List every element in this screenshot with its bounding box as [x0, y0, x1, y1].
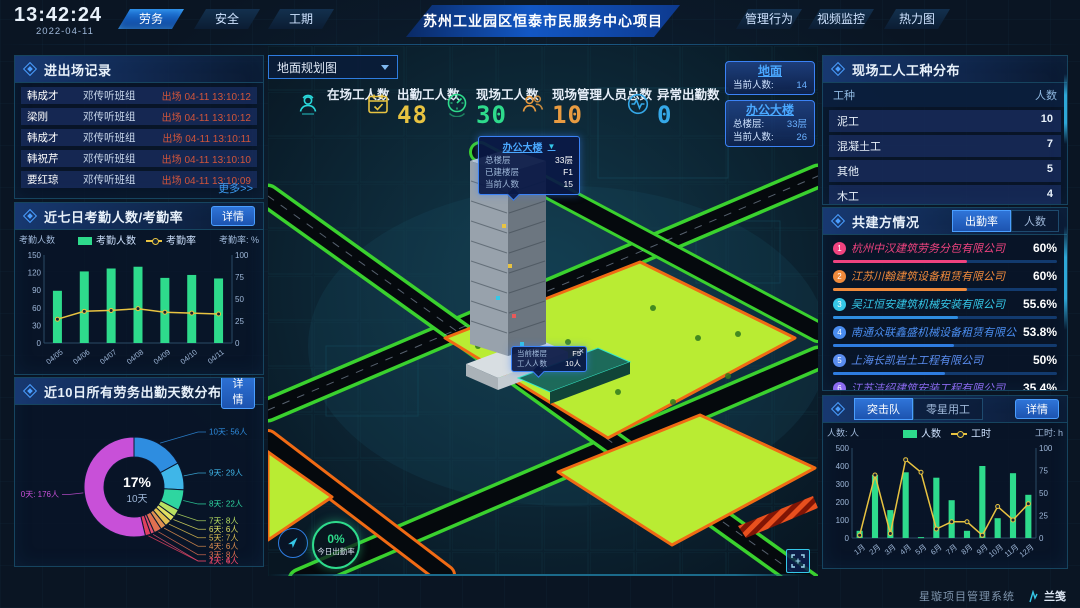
top-tab[interactable]: 管理行为	[736, 9, 802, 29]
svg-text:75: 75	[1039, 467, 1048, 476]
worker-type: 其他	[837, 163, 1013, 179]
svg-text:50: 50	[1039, 489, 1048, 498]
partner-row: 3 吴江恒安建筑机械安装有限公司 55.6%	[833, 296, 1057, 319]
svg-text:150: 150	[28, 251, 42, 260]
svg-text:5月: 5月	[913, 542, 928, 556]
svg-text:10月: 10月	[987, 542, 1005, 559]
svg-text:9月: 9月	[975, 542, 990, 556]
building-name[interactable]: 地面	[733, 64, 807, 79]
partners-tab-group: 出勤率 人数	[952, 210, 1059, 232]
panel-title: 共建方情况	[852, 212, 920, 231]
bar-swatch	[78, 237, 92, 245]
partner-row: 5 上海长凯岩土工程有限公司 50%	[833, 352, 1057, 375]
attendance-pct: 0%	[327, 533, 344, 546]
attendance-rate: 55.6%	[1023, 297, 1057, 311]
attendance-label: 今日出勤率	[317, 546, 355, 557]
building-card-office[interactable]: 办公大楼 总楼层:33层 当前人数:26	[725, 100, 815, 147]
rank-badge: 5	[833, 354, 846, 367]
clock-date: 2022-04-11	[36, 26, 94, 37]
svg-text:200: 200	[836, 498, 850, 507]
building-tooltip: 办公大楼 ▼ 总楼层33层 已建楼层F1 当前人数15	[478, 136, 580, 195]
company-name: 江苏洁绍建筑安装工程有限公司	[851, 380, 1017, 391]
right-axis-title: 工时: h	[1035, 426, 1063, 439]
svg-text:1天: 6人: 1天: 6人	[209, 557, 238, 566]
detail-button[interactable]: 详情	[211, 206, 255, 226]
svg-text:6月: 6月	[929, 542, 944, 556]
svg-text:100: 100	[1039, 444, 1053, 453]
work-group: 邓传听班组	[83, 109, 162, 124]
worker-name: 梁刚	[27, 109, 83, 124]
worker-types-list: 泥工 10 混凝土工 7 其他 5 木工 4 塔司 4	[823, 110, 1067, 205]
labor-days-donut-chart: 10天: 56人9天: 29人8天: 22人7天: 8人6天: 6人5天: 7人…	[16, 407, 260, 565]
panel-title: 现场工人工种分布	[852, 60, 960, 79]
progress-track	[833, 288, 1057, 291]
bar-swatch	[903, 430, 917, 438]
svg-text:60: 60	[32, 304, 41, 313]
panel-title: 进出场记录	[44, 60, 112, 79]
map-view-value: 地面规划图	[277, 59, 337, 76]
today-attendance-ring: 0% 今日出勤率	[312, 521, 360, 569]
svg-text:10天: 56人: 10天: 56人	[209, 427, 247, 436]
squad-tab-group: 突击队 零星用工	[854, 398, 983, 420]
squad-tab[interactable]: 突击队	[854, 398, 913, 420]
worker-count: 7	[1013, 138, 1053, 154]
svg-text:4月: 4月	[898, 542, 913, 556]
svg-text:90: 90	[32, 286, 41, 295]
svg-text:2月: 2月	[867, 542, 882, 556]
stat-item: 异常出勤数 0	[625, 84, 720, 127]
svg-text:30: 30	[32, 321, 41, 330]
company-name: 南通众联鑫盛机械设备租赁有限公司	[851, 324, 1017, 340]
worker-type: 混凝土工	[837, 138, 1013, 154]
worker-count: 10	[1013, 113, 1053, 129]
entry-exit-row: 梁刚 邓传听班组 出场 04-11 13:10:12	[21, 108, 257, 125]
detail-button[interactable]: 详情	[1015, 399, 1059, 419]
svg-text:300: 300	[836, 480, 850, 489]
progress-track	[833, 372, 1057, 375]
tooltip-title: 办公大楼	[503, 139, 543, 154]
rank-badge: 2	[833, 270, 846, 283]
svg-text:75: 75	[235, 273, 244, 282]
detail-button[interactable]: 详情	[221, 377, 255, 409]
more-link[interactable]: 更多>>	[218, 180, 253, 196]
diamond-icon	[23, 384, 37, 398]
building-name[interactable]: 办公大楼	[733, 103, 807, 118]
legend-line-item: 考勤率	[146, 232, 196, 247]
line-swatch	[146, 240, 162, 242]
table-row: 混凝土工 7	[829, 135, 1061, 157]
footer: 星璇项目管理系统 兰笺	[919, 588, 1066, 604]
progress-fill	[833, 288, 967, 291]
chevron-down-icon[interactable]: ▼	[548, 142, 556, 151]
top-tab[interactable]: 热力图	[884, 9, 950, 29]
attendance-rate: 53.8%	[1023, 325, 1057, 339]
svg-text:0天: 176人: 0天: 176人	[21, 490, 59, 499]
squad-chart: 010020030040050002550751001月2月3月4月5月6月7月…	[826, 440, 1064, 564]
svg-text:400: 400	[836, 462, 850, 471]
brand-logo: 兰笺	[1027, 588, 1066, 604]
svg-text:1月: 1月	[852, 542, 867, 556]
company-name: 江苏川翰建筑设备租赁有限公司	[851, 268, 1027, 284]
attendance-rate: 35.4%	[1023, 381, 1057, 391]
diamond-icon	[23, 209, 37, 223]
chart-legend: 人数: 人 人数 工时 工时: h	[823, 423, 1067, 440]
calendar-check-icon	[365, 91, 391, 122]
compass-icon[interactable]	[278, 528, 308, 558]
diamond-icon	[23, 62, 37, 76]
header-divider	[0, 44, 1080, 45]
diamond-icon	[831, 62, 845, 76]
left-axis-title: 人数: 人	[827, 426, 859, 439]
people-icon	[520, 91, 546, 122]
work-group: 邓传听班组	[83, 172, 162, 187]
rank-badge: 3	[833, 298, 846, 311]
top-tab[interactable]: 劳务	[118, 9, 184, 29]
svg-text:12月: 12月	[1018, 542, 1036, 559]
fullscreen-expand-icon[interactable]	[786, 549, 810, 573]
svg-text:04/08: 04/08	[125, 347, 145, 366]
worker-name: 要红琼	[27, 172, 83, 187]
legend-bar-item: 人数	[903, 425, 941, 440]
table-row: 木工 4	[829, 185, 1061, 205]
svg-text:04/06: 04/06	[71, 347, 91, 366]
svg-text:100: 100	[836, 516, 850, 525]
progress-track	[833, 316, 1057, 319]
building-card-ground[interactable]: 地面 当前人数:14	[725, 61, 815, 95]
squad-panel: 突击队 零星用工 详情 人数: 人 人数 工时 工时: h 0100200300…	[822, 395, 1068, 569]
work-group: 邓传听班组	[83, 151, 162, 166]
svg-text:8月: 8月	[959, 542, 974, 556]
worker-icon	[295, 91, 321, 122]
attendance-7day-chart: 0306090120150025507510004/0504/0604/0704…	[18, 247, 260, 369]
line-swatch	[951, 433, 967, 435]
worker-name: 韩成才	[27, 88, 83, 103]
worker-count: 4	[1013, 188, 1053, 204]
close-icon[interactable]: ×	[579, 346, 584, 356]
panel-title: 近七日考勤人数/考勤率	[44, 207, 183, 226]
svg-text:500: 500	[836, 444, 850, 453]
attendance-7day-panel: 近七日考勤人数/考勤率 详情 考勤人数 考勤人数 考勤率 考勤率: % 0306…	[14, 202, 264, 375]
entry-exit-row: 韩祝芹 邓传听班组 出场 04-11 13:10:10	[21, 150, 257, 167]
worker-count: 5	[1013, 163, 1053, 179]
svg-text:0: 0	[1039, 534, 1044, 543]
company-name: 吴江恒安建筑机械安装有限公司	[851, 296, 1017, 312]
table-row: 泥工 10	[829, 110, 1061, 132]
exit-event-time: 出场 04-11 13:10:10	[162, 151, 251, 166]
page-title: 苏州工业园区恒泰市民服务中心项目	[406, 5, 680, 37]
svg-text:3月: 3月	[883, 542, 898, 556]
exit-event-time: 出场 04-11 13:10:12	[162, 88, 251, 103]
rank-badge: 6	[833, 382, 846, 392]
company-name: 杭州中汉建筑劳务分包有限公司	[851, 240, 1027, 256]
brand-logo-text: 兰笺	[1044, 588, 1066, 604]
pulse-icon	[625, 91, 651, 122]
progress-track	[833, 260, 1057, 263]
progress-fill	[833, 344, 954, 347]
entry-exit-panel: 进出场记录 韩成才 邓传听班组 出场 04-11 13:10:12 梁刚 邓传听…	[14, 55, 264, 199]
top-tab[interactable]: 安全	[194, 9, 260, 29]
progress-fill	[833, 372, 945, 375]
worker-name: 韩成才	[27, 130, 83, 145]
partner-row: 2 江苏川翰建筑设备租赁有限公司 60%	[833, 268, 1057, 291]
partner-row: 1 杭州中汉建筑劳务分包有限公司 60%	[833, 240, 1057, 263]
left-axis-title: 考勤人数	[19, 233, 55, 246]
progress-fill	[833, 316, 958, 319]
diamond-icon	[831, 214, 845, 228]
exit-event-time: 出场 04-11 13:10:12	[162, 109, 251, 124]
map-view-select[interactable]: 地面规划图	[268, 55, 398, 79]
attendance-rate: 50%	[1033, 353, 1057, 367]
top-tab[interactable]: 视频监控	[808, 9, 874, 29]
rank-badge: 4	[833, 326, 846, 339]
worker-type: 泥工	[837, 113, 1013, 129]
diamond-icon	[831, 402, 845, 416]
svg-text:0: 0	[235, 339, 240, 348]
work-group: 邓传听班组	[83, 88, 162, 103]
right-axis-title: 考勤率: %	[219, 233, 259, 246]
entry-exit-row: 韩成才 邓传听班组 出场 04-11 13:10:11	[21, 129, 257, 146]
table-header: 工种 人数	[823, 83, 1067, 107]
legend-line-item: 工时	[951, 425, 991, 440]
panel-title: 近10日所有劳务出勤天数分布	[44, 382, 221, 401]
progress-fill	[833, 260, 967, 263]
worker-types-panel: 现场工人工种分布 工种 人数 泥工 10 混凝土工 7 其他 5 木工 4	[822, 55, 1068, 205]
partners-tab[interactable]: 出勤率	[952, 210, 1011, 232]
svg-text:8天: 22人: 8天: 22人	[209, 499, 243, 508]
floor-tooltip: × 当前楼层F5 工人人数10人	[511, 346, 587, 372]
svg-text:04/11: 04/11	[206, 347, 226, 365]
partner-row: 6 江苏洁绍建筑安装工程有限公司 35.4%	[833, 380, 1057, 391]
squad-tab[interactable]: 零星用工	[913, 398, 983, 420]
svg-text:25: 25	[1039, 512, 1048, 521]
svg-text:04/09: 04/09	[152, 347, 172, 366]
company-name: 上海长凯岩土工程有限公司	[851, 352, 1027, 368]
partners-list: 1 杭州中汉建筑劳务分包有限公司 60% 2 江苏川翰建筑设备租赁有限公司 60…	[823, 240, 1067, 391]
svg-text:04/07: 04/07	[98, 347, 118, 366]
stat-value: 0	[657, 103, 720, 127]
svg-text:50: 50	[235, 295, 244, 304]
attendance-rate: 60%	[1033, 241, 1057, 255]
progress-track	[833, 344, 1057, 347]
legend-bar-item: 考勤人数	[78, 232, 136, 247]
svg-text:04/10: 04/10	[179, 347, 199, 366]
svg-text:9天: 29人: 9天: 29人	[209, 469, 243, 478]
svg-text:0: 0	[845, 534, 850, 543]
labor-days-distribution-panel: 近10日所有劳务出勤天数分布 详情 10天: 56人9天: 29人8天: 22人…	[14, 377, 264, 567]
svg-text:11月: 11月	[1003, 542, 1021, 559]
chart-legend: 考勤人数 考勤人数 考勤率 考勤率: %	[15, 230, 263, 247]
entry-exit-row: 韩成才 邓传听班组 出场 04-11 13:10:12	[21, 87, 257, 104]
svg-text:25: 25	[235, 317, 244, 326]
table-row: 其他 5	[829, 160, 1061, 182]
clock-time: 13:42:24	[14, 4, 102, 27]
brand-logo-icon	[1027, 590, 1040, 603]
work-group: 邓传听班组	[83, 130, 162, 145]
svg-text:04/05: 04/05	[44, 347, 64, 366]
worker-type: 木工	[837, 188, 1013, 204]
partner-row: 4 南通众联鑫盛机械设备租赁有限公司 53.8%	[833, 324, 1057, 347]
worker-name: 韩祝芹	[27, 151, 83, 166]
rank-badge: 1	[833, 242, 846, 255]
exit-event-time: 出场 04-11 13:10:11	[162, 130, 251, 145]
entry-exit-list: 韩成才 邓传听班组 出场 04-11 13:10:12 梁刚 邓传听班组 出场 …	[15, 87, 263, 188]
partners-panel: 共建方情况 出勤率 人数 1 杭州中汉建筑劳务分包有限公司 60%	[822, 207, 1068, 391]
partners-tab[interactable]: 人数	[1011, 210, 1059, 232]
svg-text:7月: 7月	[944, 542, 959, 556]
svg-text:0: 0	[37, 339, 42, 348]
svg-text:120: 120	[28, 269, 42, 278]
top-tab[interactable]: 工期	[268, 9, 334, 29]
system-name: 星璇项目管理系统	[919, 588, 1015, 604]
attendance-rate: 60%	[1033, 269, 1057, 283]
gauge-icon	[444, 91, 470, 122]
chevron-down-icon[interactable]	[381, 65, 389, 70]
svg-text:100: 100	[235, 251, 249, 260]
map-frame-line	[268, 574, 818, 576]
